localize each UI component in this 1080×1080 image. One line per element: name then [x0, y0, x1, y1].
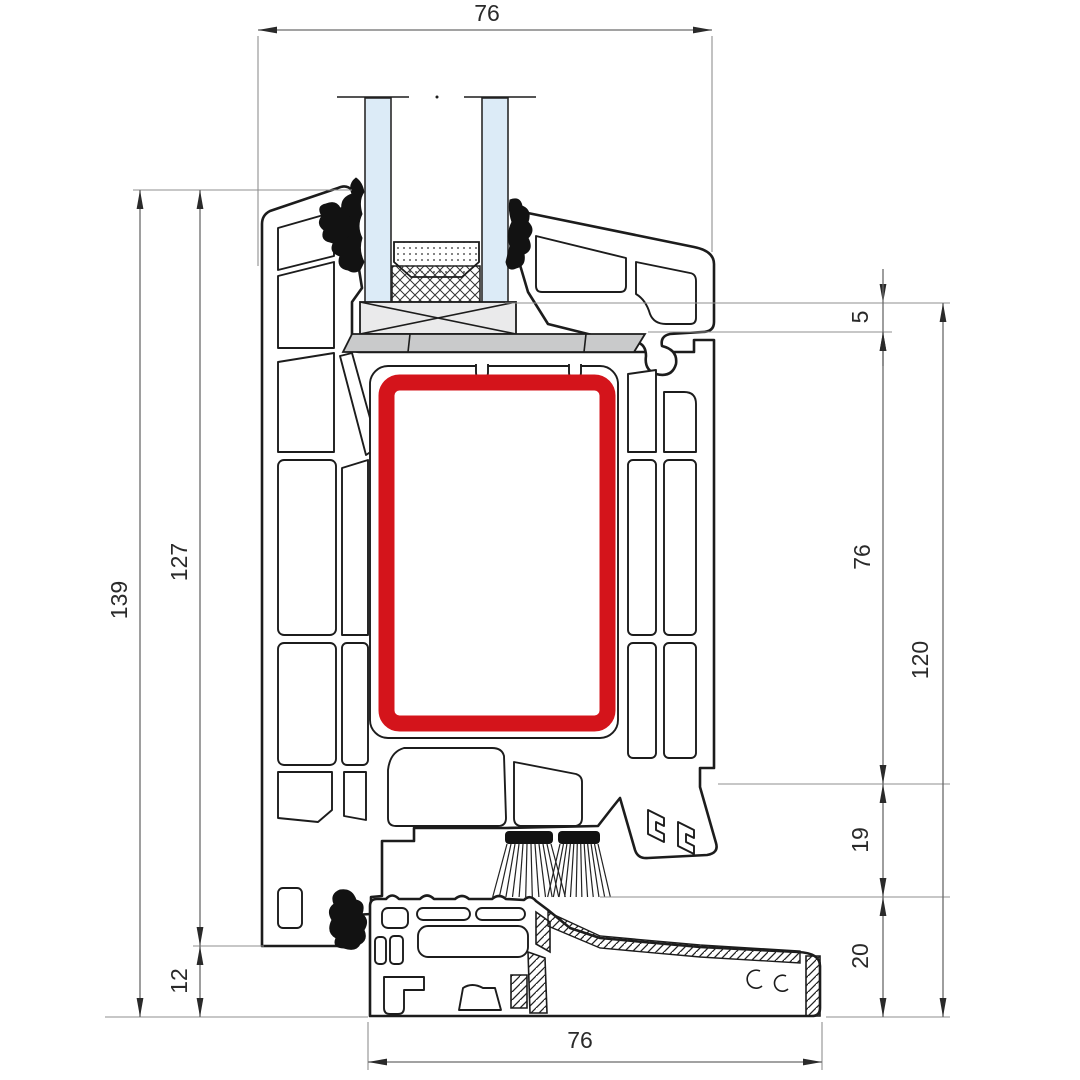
bristle — [526, 844, 527, 897]
chamber-cell — [278, 772, 332, 822]
chamber-cell — [342, 643, 368, 765]
steel-chamber-wall — [370, 366, 618, 738]
sill-slot — [476, 908, 525, 920]
brush-seals — [493, 831, 611, 897]
dimension-bottom-width: 76 — [368, 1022, 822, 1070]
dimension-label-right-rebate-step: 5 — [847, 311, 873, 324]
dimension-label-right-sill-height: 20 — [847, 943, 873, 969]
center-mark — [436, 96, 439, 99]
dimension-left-bottom-offset: 12 — [166, 946, 203, 1017]
bristle — [570, 844, 573, 897]
bristle — [581, 844, 582, 897]
bristle — [535, 844, 539, 897]
bristle — [531, 844, 532, 897]
chamber-cell — [628, 643, 656, 758]
chamber-cell — [342, 460, 368, 635]
chamber-cell — [278, 353, 334, 452]
sill-slot — [417, 908, 470, 920]
bristle — [519, 844, 523, 897]
technical-drawing-canvas: 7613912712576192012076 — [0, 0, 1080, 1080]
chamber-cell — [278, 643, 336, 765]
chamber-cell — [278, 460, 336, 635]
dimension-label-left-frame-height: 127 — [166, 543, 192, 581]
glass-spacer-fill — [394, 242, 479, 277]
glass-pane-outer — [365, 98, 391, 306]
sill-hatched-web — [528, 952, 547, 1013]
packer-bar — [343, 334, 645, 352]
dimension-label-right-frame-height: 76 — [849, 544, 875, 570]
brush-holder — [558, 831, 600, 844]
dimension-right-total-height: 120 — [907, 303, 946, 1017]
chamber-cell — [388, 748, 506, 826]
bristle — [584, 844, 587, 897]
sill-foot — [459, 985, 501, 1010]
brush-bristles — [493, 844, 611, 897]
sill-chamber — [418, 926, 528, 957]
sill-hatched-web — [511, 975, 527, 1008]
chamber-cell — [664, 643, 696, 758]
dimension-right-sill-height: 20 — [826, 897, 950, 1017]
sill-chamber — [375, 937, 386, 964]
chamber-cell — [278, 888, 302, 928]
chamber-cell — [628, 460, 656, 635]
dimension-right-frame-height: 76 — [718, 332, 950, 784]
dimension-label-bottom-width: 76 — [567, 1027, 593, 1053]
dimension-left-frame-height: 127 — [166, 190, 264, 946]
sill-end-bar — [806, 956, 820, 1016]
sill-chamber — [382, 908, 408, 928]
glass-pane-inner — [482, 98, 508, 306]
dimension-label-right-gap: 19 — [847, 827, 873, 853]
bristle — [576, 844, 577, 897]
sill-chamber — [390, 936, 403, 964]
dimension-label-top-width: 76 — [474, 0, 500, 26]
chamber-cell — [344, 772, 366, 820]
chamber-cell — [278, 262, 334, 348]
dimension-label-left-bottom-offset: 12 — [166, 968, 192, 994]
chamber-cell — [664, 392, 696, 452]
threshold-sill — [370, 896, 820, 1017]
window-profile-section-drawing: 7613912712576192012076 — [0, 0, 1080, 1080]
dimension-label-left-total-height: 139 — [106, 581, 132, 619]
chamber-cell — [628, 370, 656, 452]
brush-holder — [505, 831, 553, 844]
chamber-cell — [664, 460, 696, 635]
dimension-label-right-total-height: 120 — [907, 641, 933, 679]
